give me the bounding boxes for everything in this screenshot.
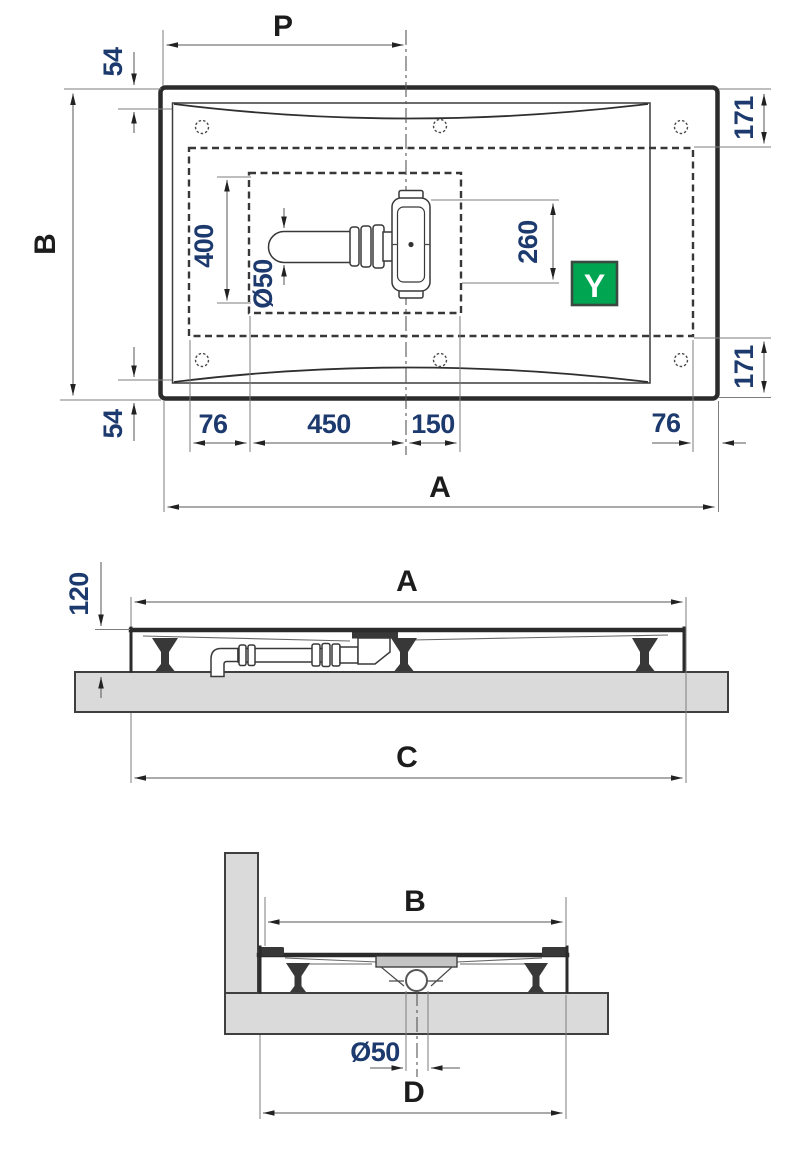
mounting-hole bbox=[675, 354, 688, 367]
pipe-coupling-rib bbox=[350, 227, 359, 266]
tray-rim-lip bbox=[542, 947, 567, 956]
label-d: D bbox=[403, 1076, 425, 1109]
label-150: 150 bbox=[411, 409, 455, 439]
mounting-hole bbox=[675, 121, 688, 134]
pipe-connector bbox=[340, 647, 358, 663]
mounting-hole bbox=[434, 354, 447, 367]
drain-assembly-plan bbox=[269, 191, 431, 299]
pipe-coupling-rib bbox=[312, 644, 320, 666]
label-d50-front: Ø50 bbox=[350, 1037, 400, 1067]
side-section-view: A C 120 bbox=[64, 562, 728, 783]
label-b: B bbox=[29, 233, 62, 255]
plan-view: Y P B A 54 54 bbox=[29, 10, 771, 512]
pipe-coupling-rib bbox=[322, 644, 330, 667]
tray-leg bbox=[632, 638, 658, 671]
y-marker-badge: Y bbox=[572, 262, 617, 305]
tray-outer-edge bbox=[161, 88, 718, 399]
wall bbox=[225, 853, 258, 994]
label-76-right: 76 bbox=[651, 408, 681, 438]
tray-leg bbox=[391, 638, 417, 671]
pipe-coupling-rib bbox=[239, 645, 246, 666]
technical-drawing: Y P B A 54 54 bbox=[0, 0, 800, 1167]
drain-flange bbox=[376, 956, 457, 967]
tray-rim-lip bbox=[259, 947, 284, 956]
label-c: C bbox=[396, 741, 418, 774]
pipe-coupling-rib bbox=[332, 644, 340, 666]
label-54-bottom: 54 bbox=[98, 409, 128, 439]
tray-profile-front bbox=[259, 947, 567, 992]
drain-outlet-circle bbox=[406, 970, 427, 991]
label-b-front: B bbox=[404, 885, 426, 918]
label-d50-plan: Ø50 bbox=[248, 259, 278, 309]
tray-leg bbox=[152, 638, 178, 671]
label-a: A bbox=[429, 471, 451, 504]
floor-slab bbox=[75, 672, 728, 712]
drain-center-point bbox=[408, 242, 413, 247]
waste-outlet-pipe bbox=[269, 232, 358, 263]
label-76-left: 76 bbox=[198, 409, 228, 439]
shower-tray-outline bbox=[161, 88, 718, 399]
tray-top-slope-arc bbox=[174, 104, 648, 119]
mounting-hole bbox=[196, 121, 209, 134]
tray-bottom-slope-arc bbox=[174, 368, 648, 383]
label-171-top: 171 bbox=[729, 96, 759, 140]
tray-leg bbox=[524, 963, 548, 992]
label-171-bottom: 171 bbox=[729, 345, 759, 389]
label-p: P bbox=[273, 10, 293, 43]
label-400: 400 bbox=[189, 224, 219, 268]
y-badge-letter: Y bbox=[584, 268, 605, 304]
label-260: 260 bbox=[513, 220, 543, 264]
pipe-coupling-rib bbox=[248, 645, 255, 666]
label-120: 120 bbox=[64, 572, 94, 616]
label-450: 450 bbox=[307, 409, 351, 439]
tray-leg bbox=[286, 963, 310, 992]
mounting-hole bbox=[196, 354, 209, 367]
waste-trap-body bbox=[358, 638, 390, 664]
label-54-top: 54 bbox=[98, 47, 128, 77]
mounting-hole bbox=[434, 120, 447, 133]
pipe-coupling-rib bbox=[361, 226, 371, 267]
front-section-view: B Ø50 D bbox=[225, 853, 608, 1119]
label-a-side: A bbox=[396, 565, 418, 598]
